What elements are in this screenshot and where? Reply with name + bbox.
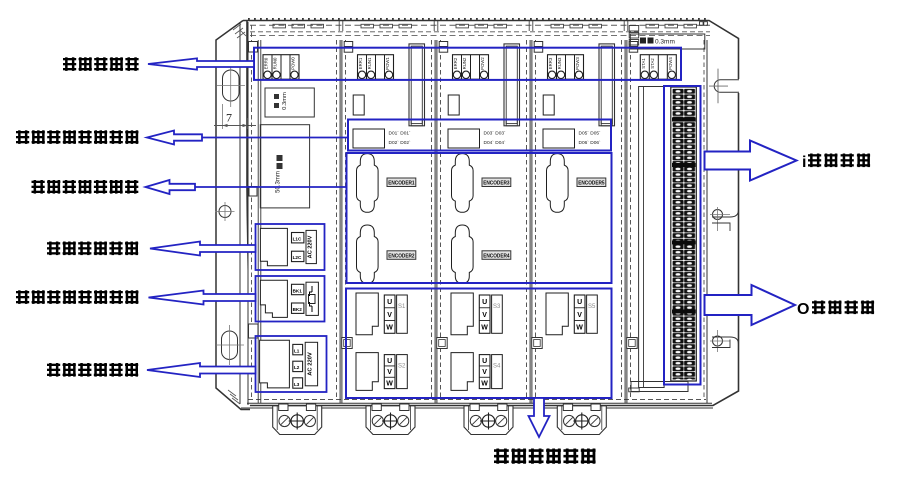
svg-text:W: W [481, 381, 488, 388]
svg-text:50.3mm: 50.3mm [276, 171, 282, 193]
svg-text:W: W [386, 381, 393, 388]
svg-text:0.3mm: 0.3mm [282, 92, 288, 110]
svg-text:POW4: POW4 [668, 57, 673, 70]
svg-text:BK2: BK2 [293, 307, 303, 312]
svg-text:POW1: POW1 [385, 57, 390, 70]
svg-text:RUN1: RUN1 [367, 57, 372, 69]
svg-text:ERR1: ERR1 [358, 57, 363, 69]
svg-text:POW3: POW3 [575, 57, 580, 70]
svg-text:S3: S3 [493, 304, 501, 310]
svg-text:D01` D01`: D01` D01` [389, 131, 412, 137]
svg-text:U: U [387, 299, 392, 306]
svg-text:ERR2: ERR2 [453, 57, 458, 69]
svg-text:ENCODER3: ENCODER3 [483, 181, 510, 187]
svg-text:7: 7 [226, 111, 232, 125]
svg-text:RUN3: RUN3 [557, 57, 562, 69]
svg-text:ERR0: ERR0 [264, 57, 269, 69]
svg-text:V: V [482, 312, 487, 319]
svg-text:S2: S2 [398, 364, 406, 370]
svg-text:ENCODER1: ENCODER1 [388, 181, 415, 187]
svg-text:W: W [481, 325, 488, 332]
svg-text:0.3mm: 0.3mm [655, 39, 675, 46]
svg-text:POW0: POW0 [291, 57, 296, 70]
svg-text:S5: S5 [588, 304, 596, 310]
svg-text:U: U [387, 358, 392, 365]
svg-text:i: i [802, 154, 806, 171]
svg-text:S1: S1 [398, 304, 406, 310]
svg-text:D03` D03`: D03` D03` [484, 131, 507, 137]
svg-text:STA1: STA1 [641, 58, 646, 69]
svg-text:W: W [386, 325, 393, 332]
svg-text:V: V [387, 369, 392, 376]
svg-text:ENCODER5: ENCODER5 [578, 181, 605, 187]
svg-text:D05` D05`: D05` D05` [579, 131, 602, 137]
svg-text:RUN0: RUN0 [273, 57, 278, 69]
svg-text:V: V [482, 369, 487, 376]
svg-text:STA2: STA2 [650, 58, 655, 69]
svg-text:S4: S4 [493, 364, 501, 370]
svg-text:U: U [482, 299, 487, 306]
svg-text:POW2: POW2 [480, 57, 485, 70]
svg-text:L1: L1 [294, 348, 300, 353]
svg-text:ENCODER4: ENCODER4 [483, 253, 510, 259]
svg-text:L2C: L2C [293, 255, 302, 260]
svg-text:V: V [387, 312, 392, 319]
svg-text:RUN2: RUN2 [462, 57, 467, 69]
svg-text:BK1: BK1 [293, 288, 303, 293]
svg-text:D06` D06`: D06` D06` [579, 140, 602, 146]
svg-text:D02` D02`: D02` D02` [389, 140, 412, 146]
svg-text:ENCODER2: ENCODER2 [388, 253, 415, 259]
svg-text:AC 220V: AC 220V [307, 352, 313, 376]
svg-text:L2: L2 [294, 365, 300, 370]
svg-text:D04` D04`: D04` D04` [484, 140, 507, 146]
svg-text:V: V [577, 312, 582, 319]
svg-text:ERR3: ERR3 [548, 57, 553, 69]
svg-text:L3: L3 [294, 382, 300, 387]
svg-text:W: W [576, 325, 583, 332]
svg-text:O: O [797, 301, 809, 318]
svg-text:U: U [482, 358, 487, 365]
svg-text:AC 220V: AC 220V [308, 235, 314, 258]
svg-text:L1C: L1C [293, 237, 302, 242]
svg-text:U: U [577, 299, 582, 306]
